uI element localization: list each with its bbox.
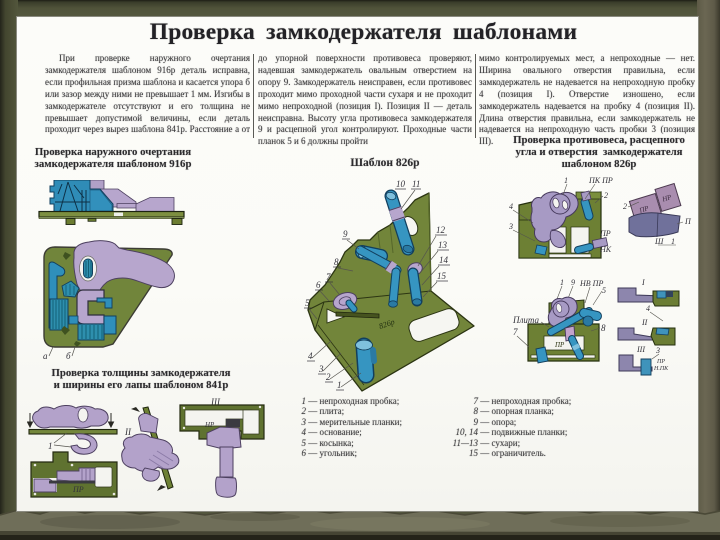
svg-text:б: б bbox=[66, 351, 71, 361]
svg-text:НВ ПР: НВ ПР bbox=[579, 279, 603, 288]
svg-text:7: 7 bbox=[513, 327, 518, 337]
svg-text:1: 1 bbox=[560, 278, 564, 287]
svg-text:4: 4 bbox=[646, 304, 650, 313]
svg-text:НР: НР bbox=[204, 421, 215, 429]
svg-text:ПР: ПР bbox=[554, 341, 565, 349]
svg-text:III: III bbox=[636, 345, 645, 354]
svg-text:10: 10 bbox=[396, 179, 406, 189]
svg-text:ПР: ПР bbox=[72, 485, 84, 494]
svg-text:5: 5 bbox=[305, 298, 310, 308]
svg-text:I: I bbox=[641, 278, 645, 287]
svg-text:6: 6 bbox=[316, 280, 321, 290]
svg-text:П: П bbox=[684, 217, 692, 226]
svg-text:ПК ПР: ПК ПР bbox=[588, 176, 613, 185]
svg-text:1: 1 bbox=[564, 176, 568, 185]
svg-text:1: 1 bbox=[671, 237, 675, 246]
svg-text:4: 4 bbox=[308, 351, 313, 361]
svg-text:8: 8 bbox=[601, 323, 606, 333]
svg-text:3: 3 bbox=[655, 346, 660, 355]
svg-text:2: 2 bbox=[604, 191, 608, 200]
svg-text:II: II bbox=[641, 318, 648, 327]
svg-text:1: 1 bbox=[48, 441, 53, 451]
svg-text:15: 15 bbox=[437, 271, 447, 281]
svg-text:Н.ПК: Н.ПК bbox=[653, 366, 669, 372]
svg-text:13: 13 bbox=[438, 240, 448, 250]
svg-text:2: 2 bbox=[326, 372, 331, 382]
svg-text:НК: НК bbox=[599, 245, 612, 254]
svg-text:8: 8 bbox=[334, 257, 339, 267]
svg-text:5: 5 bbox=[602, 286, 606, 295]
svg-text:14: 14 bbox=[439, 255, 449, 265]
svg-text:1: 1 bbox=[337, 380, 342, 390]
svg-text:Плита: Плита bbox=[512, 315, 540, 325]
svg-text:II: II bbox=[124, 427, 132, 437]
svg-text:Ш: Ш bbox=[654, 237, 664, 246]
svg-text:4: 4 bbox=[509, 202, 513, 211]
svg-text:ПР: ПР bbox=[656, 359, 665, 365]
svg-text:12: 12 bbox=[436, 225, 446, 235]
svg-text:7: 7 bbox=[326, 272, 331, 282]
svg-text:3: 3 bbox=[318, 364, 324, 374]
svg-text:2: 2 bbox=[623, 202, 627, 211]
svg-text:а: а bbox=[43, 351, 48, 361]
svg-text:9: 9 bbox=[571, 278, 575, 287]
svg-text:9: 9 bbox=[343, 229, 348, 239]
svg-text:ПР: ПР bbox=[599, 229, 611, 238]
svg-text:11: 11 bbox=[412, 179, 420, 189]
svg-text:3: 3 bbox=[508, 222, 513, 231]
